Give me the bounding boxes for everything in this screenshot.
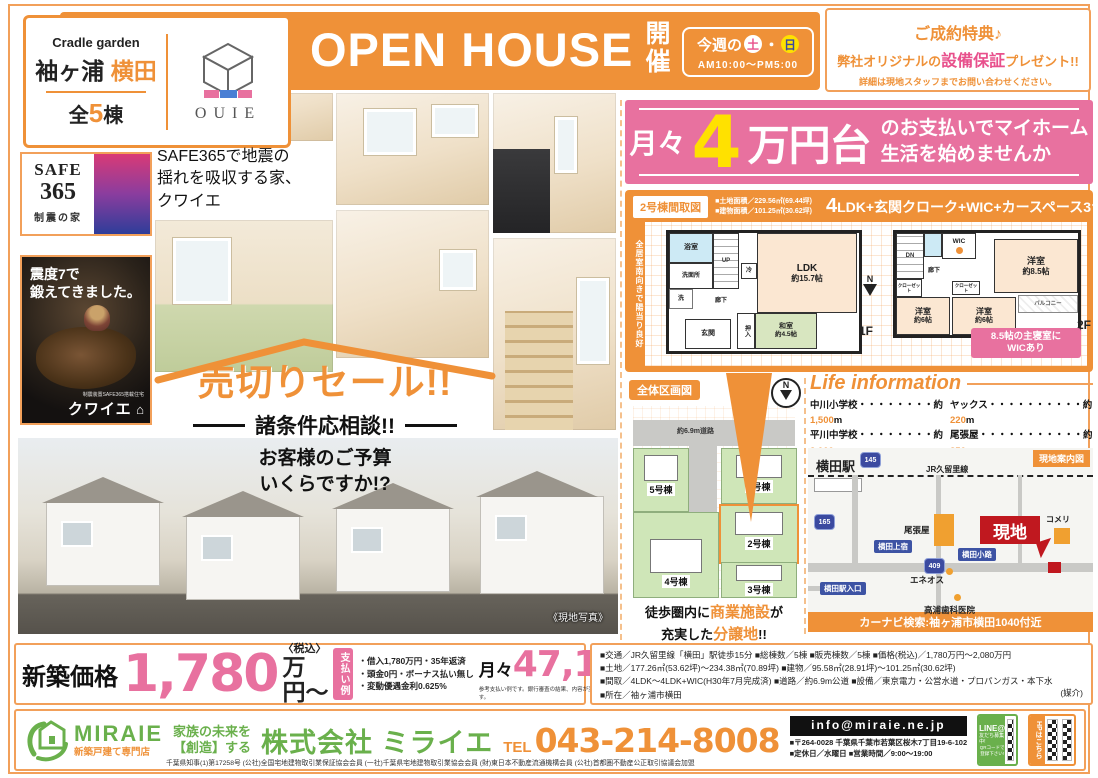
room-6a-name: 洋室: [915, 307, 931, 316]
route-409-shield: 409: [924, 558, 945, 574]
floorplan-2f: DN WIC 洋室 約8.5帖 クローゼット クローゼット 廊下 洋室 約6帖: [893, 230, 1081, 338]
stairs-up: UP: [713, 233, 739, 289]
safe365-line1: SAFE: [22, 160, 94, 180]
koji-tag: 横田小路: [958, 548, 996, 561]
roof-outline-icon: [154, 336, 496, 384]
room-fridge: 冷: [741, 263, 757, 279]
life-item-unit: m: [834, 415, 842, 426]
privilege-offer: 弊社オリジナルの設備保証プレゼント!!: [827, 47, 1089, 71]
stairs-down: DN: [896, 233, 924, 279]
promo-copy: のお支払いでマイホーム 生活を始めませんか: [881, 116, 1089, 167]
poster-headline-1: 震度7で: [30, 266, 80, 282]
siteplan-copy-accent2: 分譲地: [713, 626, 758, 643]
ouie-logo: OUIE: [168, 40, 288, 123]
siteplan-copy-1c: が: [770, 605, 783, 620]
map-road: [852, 475, 858, 567]
lot-5: 5号棟: [633, 448, 689, 512]
room-washitsu: 和室 約4.5帖: [755, 313, 817, 349]
compass-n: N: [867, 274, 874, 284]
sale-subline: 諸条件応相談!!: [160, 410, 490, 440]
kaisai-label: 開催: [638, 20, 674, 76]
komeri-building: [1054, 528, 1070, 544]
monthly-prefix: 月々: [479, 661, 513, 680]
life-item-unit: m: [966, 415, 974, 426]
life-item-name: 尾張屋: [950, 430, 979, 441]
sunday-badge: 日: [781, 35, 799, 53]
units-prefix: 全: [69, 105, 89, 127]
lot-2-house: [735, 512, 783, 535]
layout-number: 4: [826, 195, 837, 217]
line-qr-badge: LINE@ 友だち募集中! QRコードで 登録下さい!: [977, 714, 1018, 766]
sale-question: お客様のご予算 いくらですか!?: [160, 446, 490, 497]
poster-subtext: 制震装置SAFE365搭載住宅: [68, 391, 144, 398]
route-165-shield: 165: [814, 514, 835, 530]
life-item: 中川小学校・・・・・・・・約1,500m: [810, 398, 950, 428]
map-station-label: 横田駅: [816, 456, 855, 475]
siteplan-copy-2a: 充実した: [661, 627, 713, 642]
promo-unit: 万円台: [748, 112, 871, 173]
life-item-name: 平川中学校: [810, 430, 858, 441]
hp-label: HPはこちら: [1030, 716, 1045, 764]
map-badge: 現地案内図: [1033, 450, 1090, 467]
life-item-value: 1,500: [810, 415, 834, 426]
schedule-box: 今週の 土 ・ 日 AM10:00〜PM5:00: [682, 27, 814, 77]
floorplan-layout: 4LDK+玄関クローク+WIC+カースペース3台: [826, 195, 1098, 218]
tel-number: 043-214-8008: [535, 721, 780, 760]
floor-label-1f: 1F: [859, 324, 873, 338]
line-qr-code: [1008, 720, 1013, 760]
siteplan-compass-icon: N: [771, 378, 801, 408]
footer-tagline-2: 【創造】する: [173, 740, 251, 755]
poster-headline: 震度7で 鍛えてきました。: [22, 257, 150, 301]
road-horizontal: [633, 420, 795, 446]
room-ldk: LDK 約15.7帖: [757, 233, 857, 313]
balcony: バルコニー: [1018, 295, 1078, 313]
life-item: ヤックス・・・・・・・・・・約220m: [950, 398, 1093, 428]
brand-name: Cradle garden: [26, 35, 166, 50]
wic-highlight-badge: 8.5帖の主寝室に WICあり: [971, 328, 1081, 358]
siteplan-tag: 全体区画図: [629, 380, 700, 400]
land-area: ■土地面積／229.56㎡(69.44坪): [715, 198, 812, 205]
sale-sub-text: 諸条件応相談!!: [255, 410, 395, 440]
lot-1-label: 1号棟: [745, 480, 772, 493]
site-location-marker: [1048, 562, 1061, 573]
compass-icon: N: [863, 274, 877, 296]
mediation-note: (媒介): [1060, 687, 1083, 700]
miraie-house-icon: [24, 718, 70, 762]
access-map: 現地案内図 横田駅 JR久留里線 145 165 409 尾張屋 コメリ 現地 …: [808, 448, 1093, 632]
promo-copy-1: のお支払いでマイホーム: [881, 118, 1089, 139]
siteplan-compass-n: N: [783, 380, 790, 390]
project-area: 袖ヶ浦: [35, 58, 104, 84]
wic-badge-1: 8.5帖の主寝室に: [991, 331, 1061, 343]
railway-label: JR久留里線: [923, 464, 971, 475]
line-sub-1: 友だち募集中!: [979, 733, 1005, 745]
lot-3-label: 3号棟: [745, 583, 772, 596]
floorplan-1f: 浴室 洗面所 洗 UP 冷 LDK 約15.7帖 和室 約4.5帖 押入 玄関 …: [666, 230, 862, 354]
open-house-title: OPEN HOUSE: [310, 22, 633, 77]
company-name: 株式会社 ミライエ: [261, 721, 493, 760]
photo-stairs-entrance: [493, 238, 616, 430]
payment-condition-3: ・変動優遇金利0.625%: [358, 681, 446, 691]
poster-headline-2: 鍛えてきました。: [30, 284, 141, 300]
telephone: TEL 043-214-8008: [503, 721, 779, 760]
room-6a-size: 約6帖: [914, 317, 932, 325]
life-item-name: ヤックス: [950, 400, 988, 411]
hp-qr-code-1: [1048, 720, 1056, 760]
safe365-line2: 365: [22, 180, 94, 204]
tel-label: TEL: [503, 739, 531, 756]
floorplan-side-note: 全居室南向きで陽当り良好: [631, 222, 645, 366]
siteplan-copy-accent1: 商業施設: [710, 604, 770, 621]
monthly-promo-banner: 月々 4 万円台 のお支払いでマイホーム 生活を始めませんか: [625, 100, 1093, 184]
komeri-label: コメリ: [1046, 514, 1070, 525]
house-icon: ⌂: [136, 402, 144, 417]
life-item-dots: ・・・・・・・・約: [858, 400, 944, 411]
owariya-label: 尾張屋: [904, 524, 930, 536]
wic-badge-2: WICあり: [1007, 343, 1044, 355]
units-number: 5: [89, 98, 103, 128]
cowboy-image: [84, 305, 110, 331]
room-closet: クローゼット: [896, 279, 922, 297]
room-closet-oshiire: 押入: [737, 313, 755, 349]
room-bath: 浴室: [669, 233, 713, 263]
price-unit: 万円〜: [282, 655, 328, 706]
lot-2-highlighted: 2号棟: [719, 504, 799, 564]
lot-5-label: 5号棟: [647, 483, 674, 496]
payment-conditions: ・借入1,780万円・35年返済 ・頭金0円・ボーナス払い無し ・変動優遇金利0…: [358, 655, 473, 693]
route-145-shield: 145: [860, 452, 881, 468]
room-ldk-name: LDK: [797, 263, 818, 275]
hp-qr-badge: HPはこちら: [1028, 714, 1076, 766]
project-town: 横田: [111, 58, 157, 84]
room-85-name: 洋室: [1027, 256, 1045, 266]
floorplan-tag: 2号棟間取図: [633, 196, 708, 218]
ekiiriguchi-tag: 横田駅入口: [820, 582, 866, 595]
room-bedroom-6a: 洋室 約6帖: [896, 297, 950, 335]
sale-block: 売切りセール!! 諸条件応相談!! お客様のご予算 いくらですか!?: [160, 352, 490, 488]
siteplan-copy-2c: !!: [758, 627, 767, 642]
floorplan-box: 2号棟間取図 ■土地面積／229.56㎡(69.44坪) ■建物面積／101.2…: [625, 190, 1093, 372]
house-shape: [186, 516, 300, 600]
eneos-marker: [946, 568, 953, 575]
price-tax-note: 〈税込〉: [282, 643, 328, 655]
privilege-note: 詳細は現地スタッフまでお問い合わせください。: [827, 75, 1089, 88]
siteplan-copy: 徒歩圏内に商業施設が 充実した分譲地!!: [625, 602, 803, 646]
project-card: Cradle garden 袖ヶ浦 横田 全5棟 OUIE: [23, 15, 291, 148]
room-6b-name: 洋室: [976, 307, 992, 316]
safe-copy-2: 揺れを吸収する家、: [157, 170, 301, 187]
schedule-week: 今週の: [697, 34, 742, 55]
property-specs: ■交通／JR久留里線「横田」駅徒歩15分 ■総棟数／5棟 ■販売棟数／5棟 ■価…: [590, 643, 1093, 705]
photo-bedroom: [336, 93, 489, 205]
specs-line-2: ■土地／177.26㎡(53.62坪)〜234.38㎡(70.89坪) ■建物／…: [600, 662, 1083, 675]
floorplan-areas: ■土地面積／229.56㎡(69.44坪) ■建物面積／101.25㎡(30.6…: [715, 197, 812, 217]
room-genkan: 玄関: [685, 319, 731, 349]
privilege-offer-pre: 弊社オリジナルの: [837, 54, 941, 69]
safe-copy-1: SAFE365で地震の: [157, 148, 290, 165]
miraie-sub: 新築戸建て専門店: [74, 748, 163, 758]
siteplan-copy-1a: 徒歩圏内に: [645, 605, 710, 620]
privilege-box: ご成約特典♪ 弊社オリジナルの設備保証プレゼント!! 詳細は現地スタッフまでお問…: [825, 8, 1091, 92]
road-label: 約6.9m道路: [677, 426, 714, 436]
footer-tagline-1: 家族の未来を: [173, 724, 251, 739]
kamijuku-tag: 横田上宿: [874, 540, 912, 553]
office-hours: ■定休日／水曜日 ■営業時間／9:00〜19:00: [790, 749, 968, 759]
promo-copy-2: 生活を始めませんか: [881, 144, 1051, 165]
room-wic: WIC: [942, 233, 976, 259]
life-information-title: Life information: [810, 372, 961, 395]
footer-tagline: 家族の未来を 【創造】する: [173, 724, 251, 757]
poster-brand-name: クワイエ: [68, 401, 132, 418]
photo-kitchen: [493, 93, 616, 233]
life-item-dots: ・・・・・・・・約: [858, 430, 944, 441]
map-road: [936, 475, 941, 621]
card-divider: [46, 91, 146, 93]
privilege-title: ご成約特典♪: [827, 20, 1089, 44]
safe365-line3: 制震の家: [22, 209, 94, 224]
house-shape: [480, 496, 604, 594]
lot-5-house: [644, 455, 678, 481]
dental-label: 高浦歯科医院: [924, 604, 975, 616]
project-name: 袖ヶ浦 横田: [26, 52, 166, 86]
sale-question-2: いくらですか!?: [259, 474, 390, 495]
license-text: 千葉県知事(1)第17258号 (公社)全国宅地建物取引業保証協会会員 (一社)…: [166, 757, 695, 767]
bull-image: [36, 327, 136, 389]
room-toilet: [924, 233, 942, 257]
schedule-hours: AM10:00〜PM5:00: [698, 56, 798, 71]
divider-vertical: [620, 100, 622, 640]
safe365-logo-box: SAFE 365 制震の家: [20, 152, 152, 236]
layout-text: LDK+玄関クローク+WIC+カースペース3台: [837, 199, 1098, 215]
house-shape: [46, 502, 160, 586]
room-laundry: 洗: [669, 289, 693, 309]
safe365-copy: SAFE365で地震の 揺れを吸収する家、 クワイエ: [157, 146, 312, 213]
room-wic-name: WIC: [953, 238, 966, 245]
siteplan-box: 全体区画図 N 約6.9m道路 5号棟 1号棟 2号棟 4号棟: [625, 378, 803, 640]
lot-4-house: [650, 539, 702, 573]
specs-line-4: ■所在／袖ヶ浦市横田: [600, 689, 1083, 702]
price-label: 新築価格: [22, 657, 118, 692]
company-footer: MIRAIE 新築戸建て専門店 家族の未来を 【創造】する 株式会社 ミライエ …: [14, 709, 1086, 771]
owariya-building: [934, 514, 954, 546]
lot-2-label: 2号棟: [745, 537, 772, 550]
price-amount: 1,780: [123, 648, 277, 700]
payment-condition-1: ・借入1,780万円・35年返済: [358, 656, 465, 666]
promo-number: 4: [692, 110, 742, 175]
room-bedroom-85: 洋室 約8.5帖: [994, 239, 1078, 293]
ouie-wordmark: OUIE: [195, 105, 261, 123]
privilege-offer-accent: 設備保証: [941, 53, 1005, 70]
wic-dot: [956, 247, 963, 254]
kuwaie-poster: 震度7で 鍛えてきました。 制震装置SAFE365搭載住宅 クワイエ ⌂: [20, 255, 152, 425]
dental-marker: [954, 594, 961, 601]
safe365-gradient: [94, 154, 150, 234]
office-address: ■〒264-0028 千葉県千葉市若葉区桜木7丁目19-6-102: [790, 738, 968, 748]
saturday-badge: 土: [744, 35, 762, 53]
lot-3-house: [736, 565, 782, 581]
ouie-cube-icon: [195, 40, 261, 102]
room-6b-size: 約6帖: [975, 317, 993, 325]
photo-caption: 《現地写真》: [548, 609, 608, 624]
room-washitsu-size: 約4.5帖: [775, 331, 797, 338]
flyer-page: OPEN HOUSE 開催 今週の 土 ・ 日 AM10:00〜PM5:00 C…: [0, 0, 1098, 778]
total-units: 全5棟: [26, 98, 166, 129]
room-ldk-size: 約15.7帖: [791, 274, 823, 283]
contact-block: info@miraie.ne.jp ■〒264-0028 千葉県千葉市若葉区桜木…: [790, 716, 968, 759]
privilege-offer-post: プレゼント!!: [1005, 54, 1079, 69]
building-area: ■建物面積／101.25㎡(30.62坪): [715, 208, 812, 215]
payment-example-tag: 支払い例: [333, 648, 353, 700]
room-hallway: 廊下: [715, 295, 727, 304]
room-closet: クローゼット: [952, 281, 980, 295]
life-item-dots: ・・・・・・・・・・約: [988, 400, 1093, 411]
promo-prefix: 月々: [629, 122, 685, 162]
units-suffix: 棟: [103, 105, 123, 127]
miraie-wordmark: MIRAIE: [74, 723, 163, 745]
lot-1: 1号棟: [721, 448, 797, 504]
room-85-size: 約8.5帖: [1022, 267, 1049, 276]
railway-line: [808, 475, 1093, 477]
lot-4: 4号棟: [633, 512, 719, 598]
specs-line-3: ■間取／4LDK〜4LDK+WIC(H30年7月完成済) ■道路／約6.9m公道…: [600, 675, 1083, 688]
miraie-logo: MIRAIE 新築戸建て専門店: [24, 718, 163, 762]
safe-copy-3: クワイエ: [157, 193, 221, 210]
payment-condition-2: ・頭金0円・ボーナス払い無し: [358, 669, 473, 679]
house-shape: [336, 508, 450, 592]
lot-1-house: [736, 455, 782, 478]
lot-3: 3号棟: [721, 562, 797, 598]
life-item-name: 中川小学校: [810, 400, 858, 411]
sale-question-1: お客様のご予算: [258, 448, 391, 469]
eneos-label: エネオス: [910, 574, 944, 586]
line-sub-3: 登録下さい!: [980, 751, 1004, 756]
price-box: 新築価格 1,780 〈税込〉 万円〜 支払い例 ・借入1,780万円・35年返…: [14, 643, 586, 705]
room-hallway-2f: 廊下: [928, 265, 940, 274]
divider-vertical: [804, 378, 806, 634]
schedule-dot: ・: [764, 34, 779, 55]
life-item-dots: ・・・・・・・・・・・約: [979, 430, 1093, 441]
room-washroom: 洗面所: [669, 263, 713, 289]
line-label: LINE@: [979, 724, 1005, 734]
email-address: info@miraie.ne.jp: [790, 716, 968, 736]
floorplan-body: 全居室南向きで陽当り良好 浴室 洗面所 洗 UP 冷 LDK 約15.7帖 和室…: [631, 222, 1087, 366]
lot-4-label: 4号棟: [662, 575, 689, 588]
siteplan-map: 約6.9m道路 5号棟 1号棟 2号棟 4号棟 3号棟: [633, 406, 795, 598]
life-item-value: 220: [950, 415, 966, 426]
specs-line-1: ■交通／JR久留里線「横田」駅徒歩15分 ■総棟数／5棟 ■販売棟数／5棟 ■価…: [600, 649, 1083, 662]
hp-qr-code-2: [1063, 720, 1071, 760]
site-location-tag: 現地: [980, 516, 1040, 544]
